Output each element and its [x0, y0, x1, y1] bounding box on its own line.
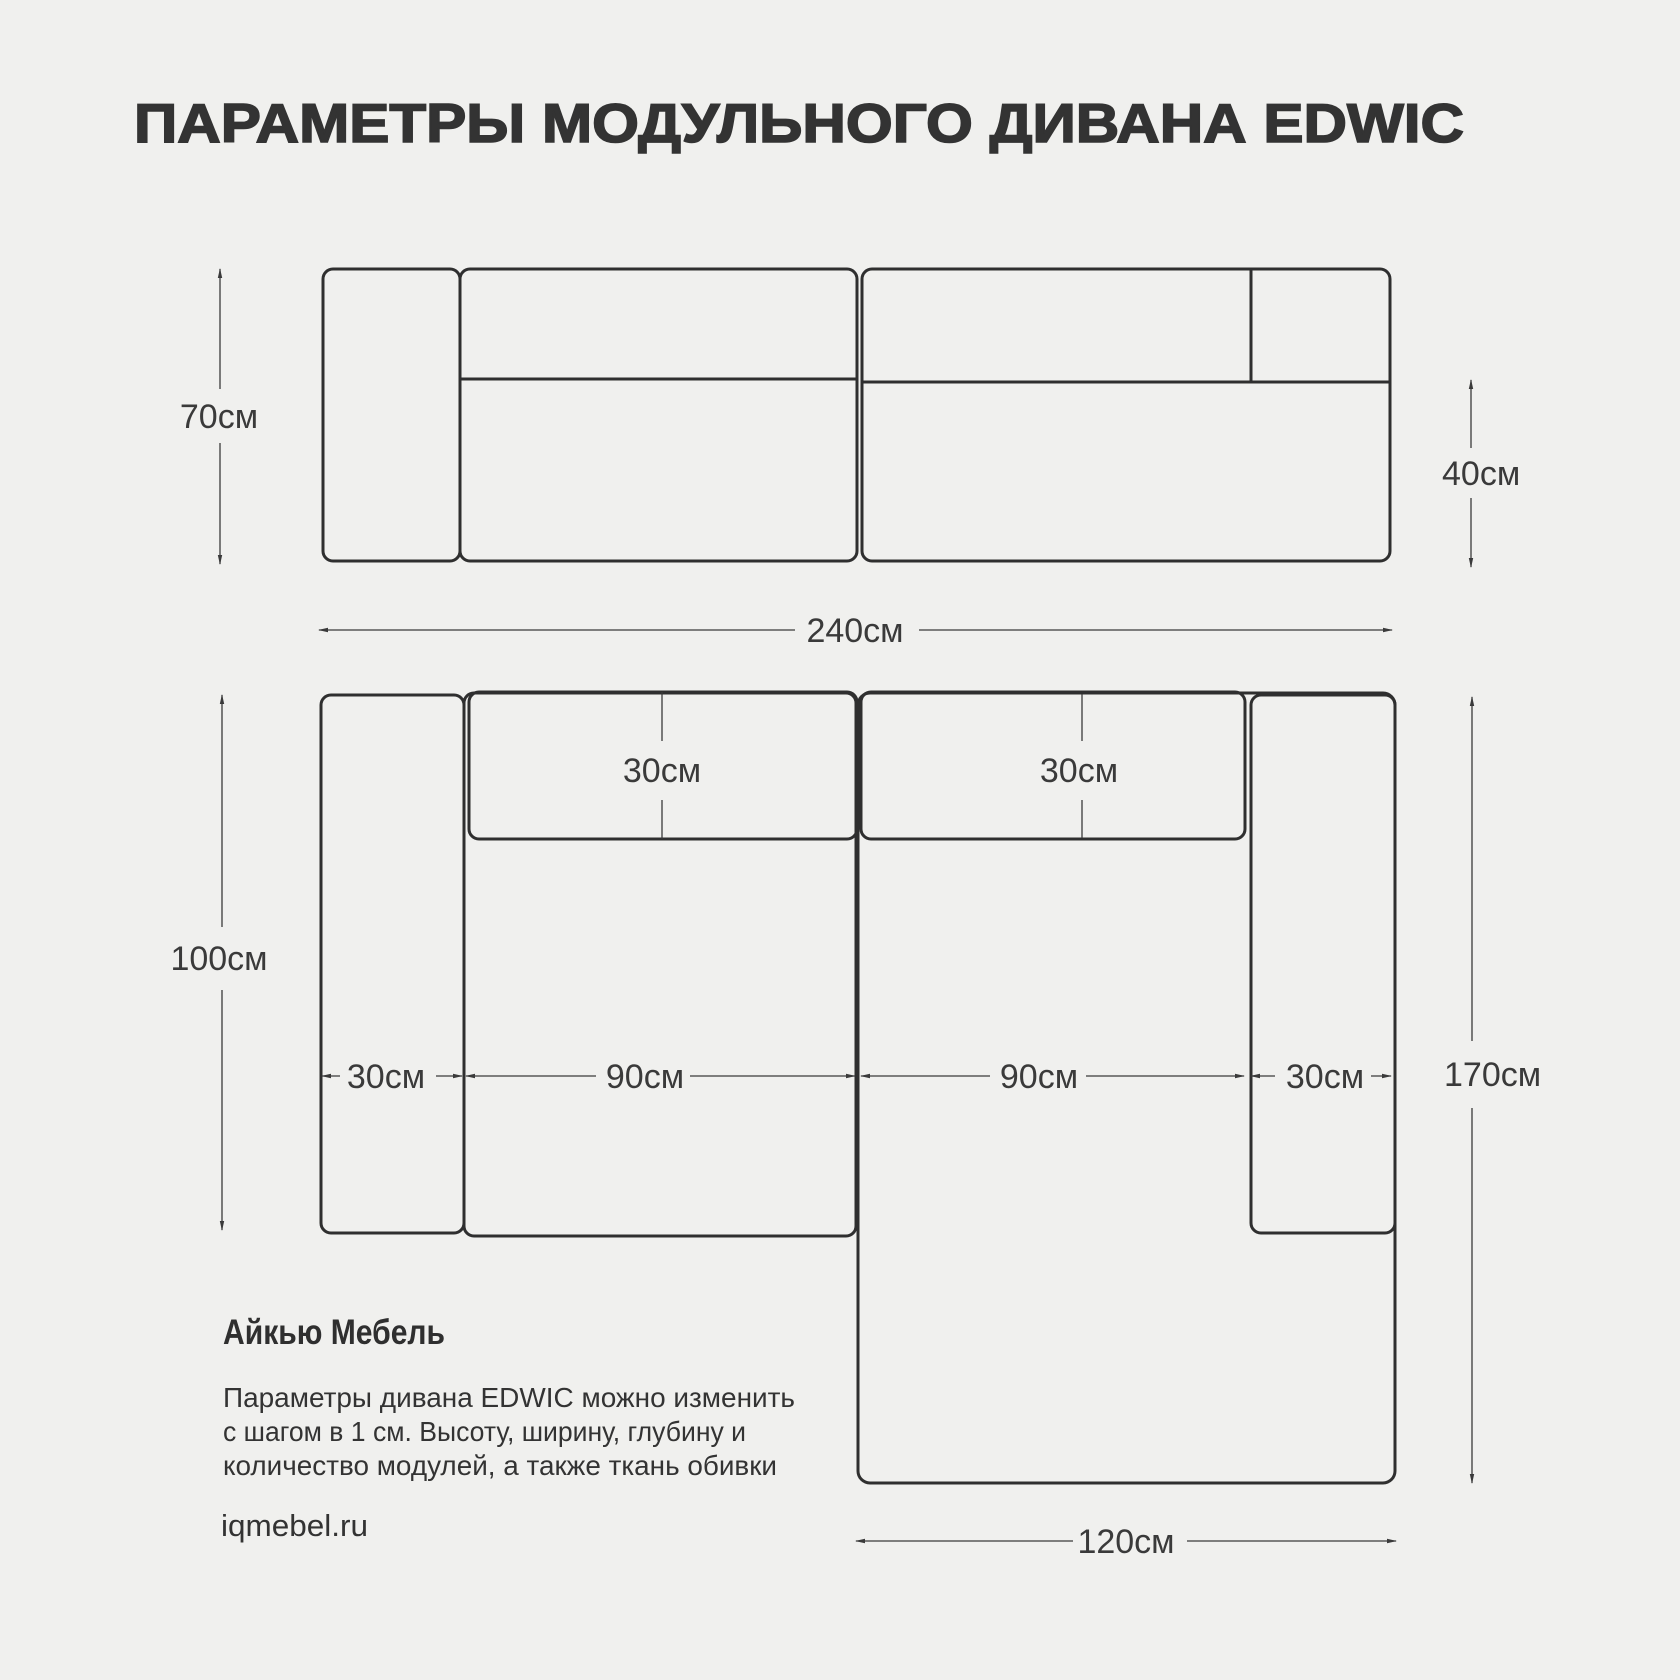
svg-text:30см: 30см — [1286, 1058, 1364, 1096]
svg-text:120см: 120см — [1077, 1523, 1174, 1561]
svg-text:170см: 170см — [1444, 1056, 1541, 1094]
svg-text:100см: 100см — [170, 940, 267, 978]
svg-text:90см: 90см — [1000, 1058, 1078, 1096]
svg-text:30см: 30см — [1040, 752, 1118, 790]
svg-text:Айкью Мебель: Айкью Мебель — [223, 1313, 445, 1352]
svg-text:30см: 30см — [623, 752, 701, 790]
svg-text:70см: 70см — [180, 398, 258, 436]
svg-text:с шагом в 1 см. Высоту, ширину: с шагом в 1 см. Высоту, ширину, глубину … — [223, 1416, 746, 1447]
svg-text:iqmebel.ru: iqmebel.ru — [221, 1508, 368, 1543]
svg-text:Параметры дивана EDWIC можно и: Параметры дивана EDWIC можно изменить — [223, 1382, 795, 1413]
svg-text:30см: 30см — [347, 1058, 425, 1096]
svg-text:90см: 90см — [606, 1058, 684, 1096]
svg-text:40см: 40см — [1442, 455, 1520, 493]
svg-text:количество модулей, а также тк: количество модулей, а также ткань обивки — [223, 1450, 777, 1481]
svg-text:ПАРАМЕТРЫ МОДУЛЬНОГО ДИВАНА ED: ПАРАМЕТРЫ МОДУЛЬНОГО ДИВАНА EDWIC — [134, 92, 1464, 154]
svg-text:240см: 240см — [806, 612, 903, 650]
